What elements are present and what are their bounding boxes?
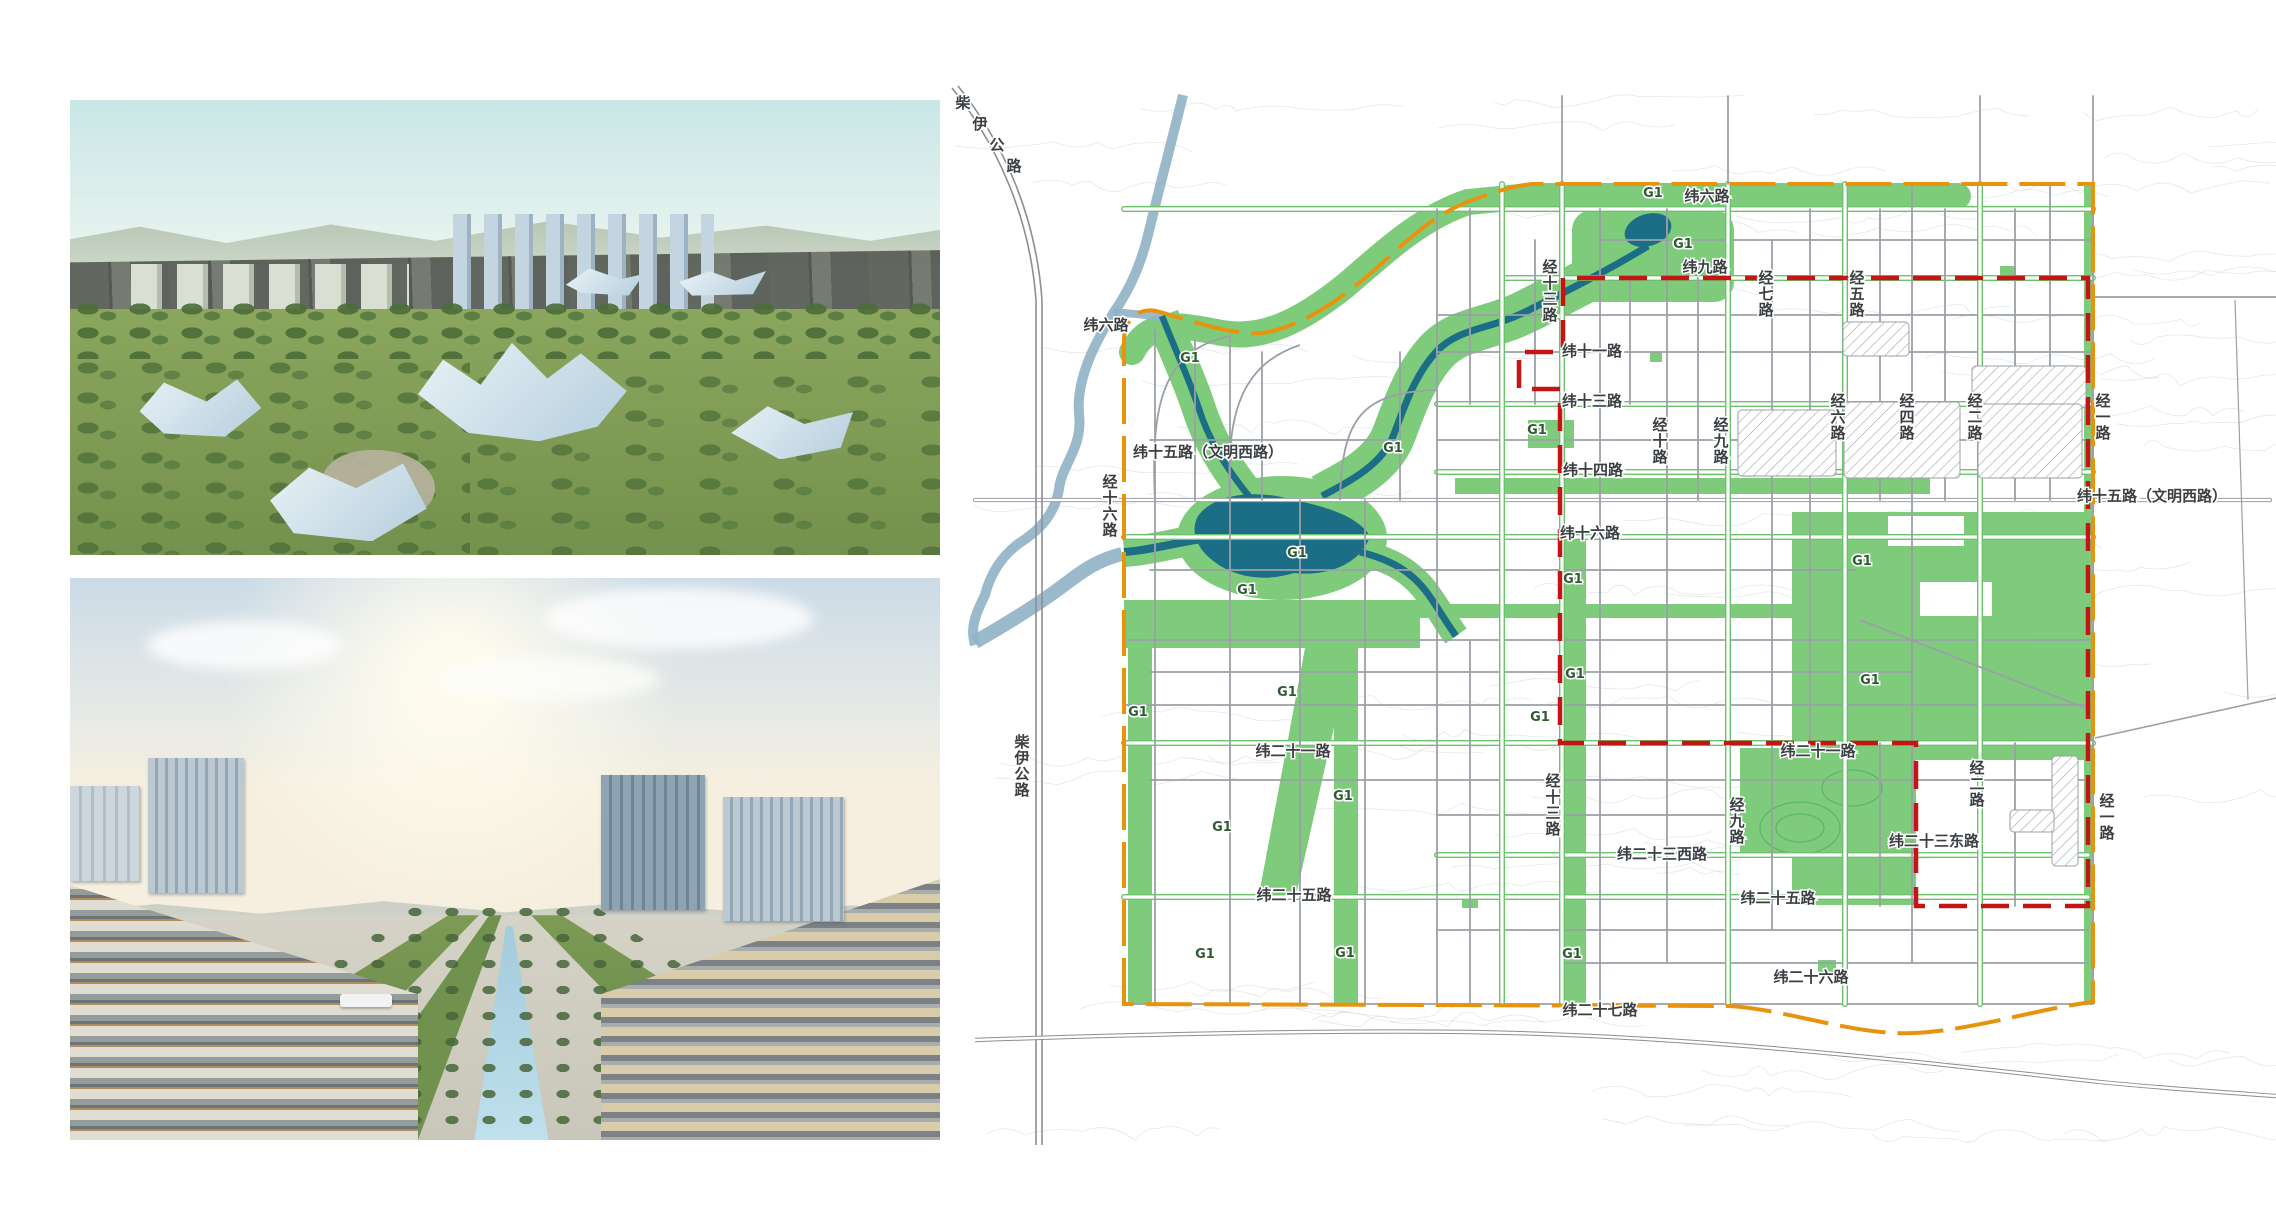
road-label: 纬十五路（文明西路）: [2077, 487, 2227, 505]
green-space-code-label: G1: [1277, 685, 1297, 700]
glass-tower-right: [601, 775, 705, 910]
road-label: 纬二十三西路: [1617, 845, 1708, 863]
road-label: 经二路: [1967, 392, 1983, 442]
road-label: 纬二十一路: [1780, 742, 1856, 760]
road-label: 经二路: [1969, 759, 1985, 809]
green-space-code-label: G1: [1565, 667, 1585, 682]
road-label: 纬十五路（文明西路）: [1133, 443, 1283, 461]
glass-tower-far-left: [70, 786, 140, 882]
green-space-code-label: G1: [1673, 237, 1693, 252]
green-space-code-label: G1: [1860, 673, 1880, 688]
road-label: 柴伊公路: [954, 94, 1022, 175]
road-label: 经十三路: [1542, 258, 1558, 324]
green-space-code-label: G1: [1563, 572, 1583, 587]
green-space-code-label: G1: [1180, 351, 1200, 366]
road-label: 纬二十七路: [1562, 1001, 1638, 1019]
tram: [340, 994, 392, 1007]
road-label: 纬二十一路: [1255, 742, 1331, 760]
road-label: 纬十六路: [1560, 524, 1621, 542]
road-label: 经九路: [1728, 796, 1745, 846]
green-space-code-label: G1: [1527, 423, 1547, 438]
road-label: 经五路: [1849, 269, 1865, 319]
road-label: 经一路: [2099, 792, 2115, 842]
road-label: 纬二十六路: [1773, 968, 1849, 986]
road-label: 纬二十五路: [1740, 889, 1816, 907]
aerial-campus-rendering: [70, 100, 940, 555]
green-space-code-label: G1: [1530, 710, 1550, 725]
road-label: 经九路: [1712, 416, 1729, 466]
road-label: 纬十三路: [1562, 392, 1623, 410]
green-space-code-label: G1: [1562, 947, 1582, 962]
tree-band: [70, 300, 940, 359]
green-space-code-label: G1: [1333, 789, 1353, 804]
green-space-code-label: G1: [1212, 820, 1232, 835]
road-label: 纬十四路: [1563, 461, 1624, 479]
green-space-code-label: G1: [1128, 705, 1148, 720]
road-label: 经十路: [1652, 416, 1668, 466]
road-label: 纬十一路: [1562, 342, 1623, 360]
glass-tower-far-right: [723, 797, 845, 921]
road-label: 经十六路: [1102, 473, 1118, 539]
green-space-code-label: G1: [1852, 554, 1872, 569]
green-space-code-label: G1: [1287, 546, 1307, 561]
road-label: 纬六路: [1083, 316, 1129, 334]
green-space-code-label: G1: [1335, 946, 1355, 961]
road-label: 纬六路: [1684, 187, 1730, 205]
road-label: 纬二十五路: [1256, 886, 1332, 904]
road-label: 经四路: [1899, 392, 1915, 442]
street-boulevard-rendering: [70, 578, 940, 1140]
road-label: 纬九路: [1682, 258, 1728, 276]
green-space-code-label: G1: [1383, 441, 1403, 456]
road-label: 经七路: [1758, 269, 1774, 319]
presentation-board: 柴伊公路纬六路纬十五路（文明西路）经十六路柴伊公路纬六路纬九路经十三路纬十一路经…: [0, 0, 2276, 1205]
glass-tower-left: [148, 758, 244, 893]
master-plan-map: 柴伊公路纬六路纬十五路（文明西路）经十六路柴伊公路纬六路纬九路经十三路纬十一路经…: [940, 80, 2276, 1150]
road-label: 经六路: [1830, 392, 1846, 442]
green-space-code-label: G1: [1195, 947, 1215, 962]
road-label: 柴伊公路: [1013, 733, 1030, 799]
road-label: 经一路: [2095, 392, 2111, 442]
green-space-code-label: G1: [1237, 583, 1257, 598]
road-label: 经十三路: [1545, 772, 1561, 838]
green-space-code-label: G1: [1643, 186, 1663, 201]
road-label: 纬二十三东路: [1889, 832, 1980, 850]
green-space-layer: [1124, 186, 2094, 1004]
